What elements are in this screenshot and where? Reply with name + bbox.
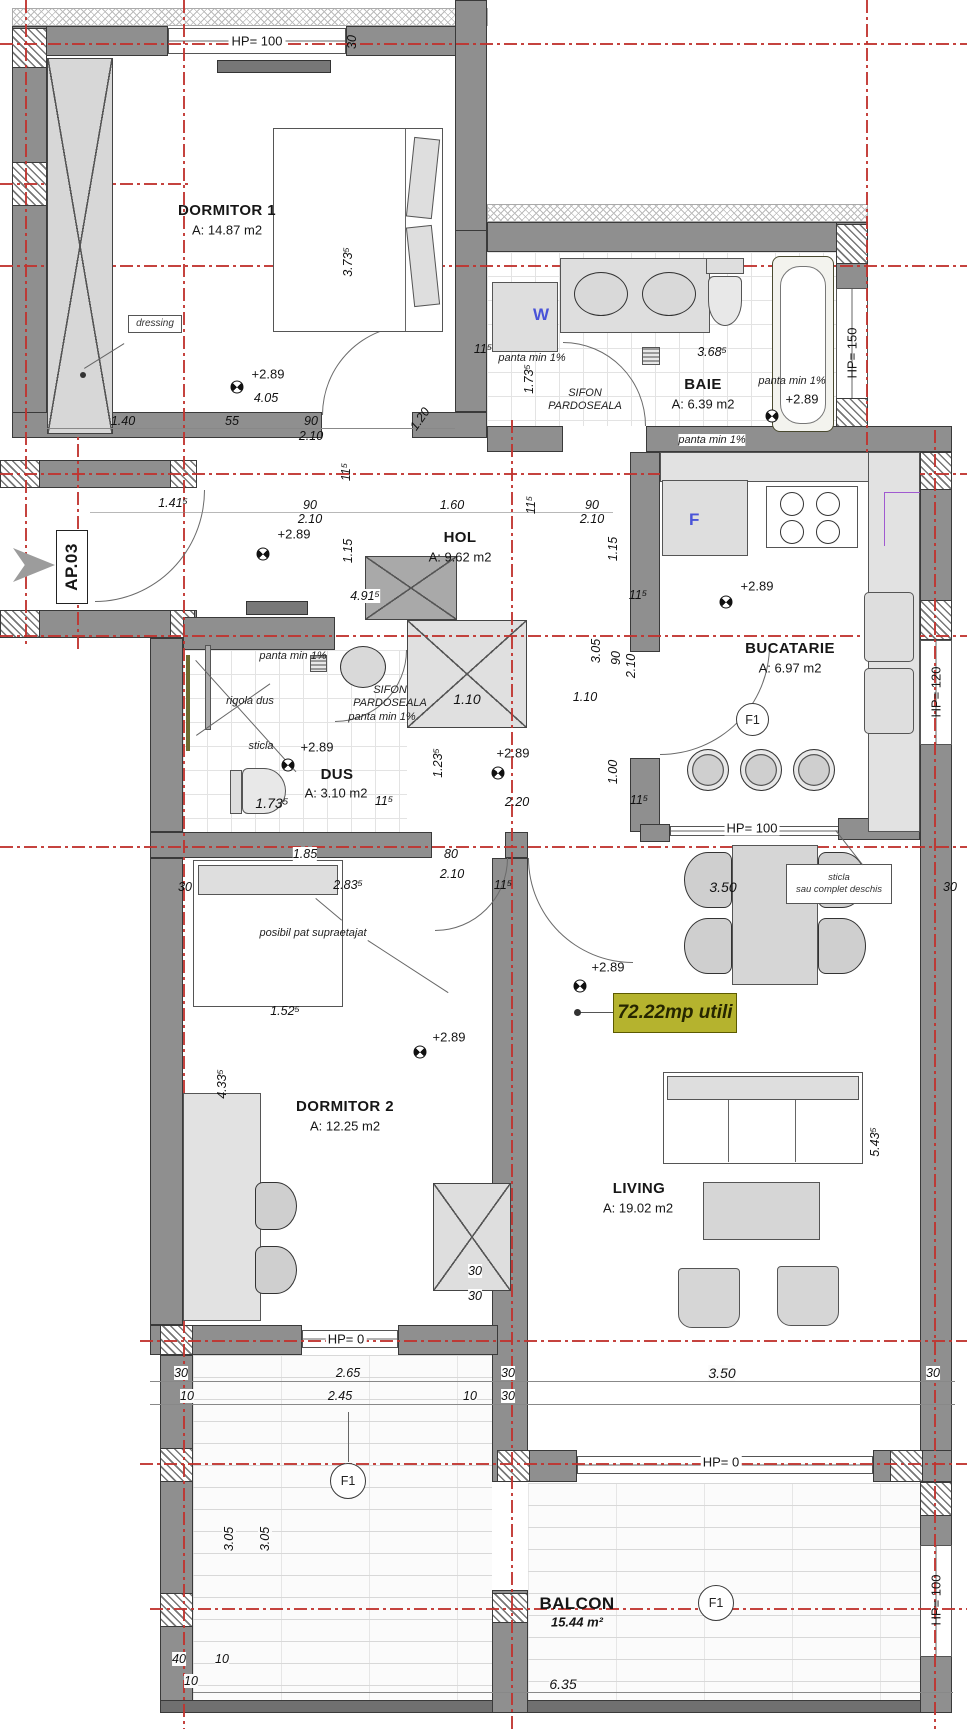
room-label-living: LIVING — [613, 1180, 665, 1198]
fridge-label: F — [689, 510, 699, 530]
floor-drain-baie — [642, 347, 660, 365]
level-text-living: +2.89 — [592, 960, 625, 975]
dim-label: 90 — [609, 651, 623, 665]
dim-chain-d1 — [47, 428, 455, 429]
dining-chair-2 — [684, 918, 732, 974]
sticla-partition — [186, 655, 190, 751]
dim-label: 1.15 — [606, 537, 620, 561]
door-dormitor1 — [322, 325, 412, 415]
room-label-dus: DUS — [321, 766, 354, 784]
column-living-bottom-right — [890, 1450, 923, 1482]
kitchen-sink-unit-bottom — [864, 668, 914, 734]
entrance-arrow-icon — [13, 548, 55, 582]
sifon-dus-line1: SIFON — [373, 684, 407, 696]
wall-dus-left — [150, 638, 183, 832]
dim-label: 1.73⁵ — [255, 795, 288, 811]
burner-3 — [780, 520, 804, 544]
insulation-strip-baie — [487, 204, 868, 222]
armchair-2 — [777, 1266, 839, 1326]
sofa-back — [667, 1076, 859, 1100]
dim-label: 1.60 — [440, 498, 464, 512]
toilet-baie-bowl — [708, 276, 742, 326]
purple-line-v — [884, 492, 885, 546]
level-marker-dus-right — [489, 764, 507, 782]
dressing-note: dressing — [128, 315, 182, 333]
axis-line-h1 — [0, 43, 967, 45]
dim-label: 30 — [178, 880, 192, 894]
dim-label: 90 — [304, 414, 318, 428]
sofa-seat-divider-2 — [795, 1100, 796, 1162]
room-label-hol: HOL — [444, 529, 477, 547]
dim-label: 3.73⁵ — [341, 247, 355, 277]
desk-chair-2 — [255, 1246, 297, 1294]
panta-note-dus-bottom: panta min 1% — [348, 711, 415, 723]
column-entrance-bot-left — [0, 610, 40, 638]
hp-living-door: HP= 0 — [701, 1455, 742, 1470]
axis-line-v5 — [866, 0, 868, 475]
dim-label: 55 — [225, 414, 239, 428]
dim-label: 30 — [468, 1264, 482, 1278]
dim-label: 11⁵ — [375, 794, 393, 808]
wall-baie-left — [455, 230, 487, 412]
level-text-hol: +2.89 — [278, 527, 311, 542]
f1-label: F1 — [341, 1474, 356, 1488]
axis-line-v1 — [25, 0, 27, 648]
dim-label: 10 — [180, 1389, 194, 1403]
apartment-label-box: AP.03 — [56, 530, 88, 604]
f1-marker-kitchen: F1 — [736, 703, 769, 736]
sifon-dus-line2: PARDOSEALA — [353, 697, 427, 709]
dim-chain-bottom-2 — [150, 1404, 955, 1405]
dim-label: 3.50 — [708, 1365, 735, 1381]
dim-label: 10 — [215, 1652, 229, 1666]
wall-kitchen-left-upper — [630, 452, 660, 652]
bar-stool-3 — [793, 749, 835, 791]
room-area-dus: A: 3.10 m2 — [305, 786, 368, 801]
desk-dormitor2 — [183, 1093, 261, 1321]
dim-label: 3.50 — [709, 879, 736, 895]
dim-label: 30 — [501, 1389, 515, 1403]
dim-label: 1.15 — [341, 539, 355, 563]
door-living — [528, 858, 633, 963]
room-area-balcon: 15.44 m² — [551, 1615, 603, 1630]
badge-leader-dot — [574, 1009, 581, 1016]
dim-label: 11⁵ — [630, 793, 648, 807]
posibil-leader — [367, 940, 448, 993]
dim-label: 6.35 — [549, 1676, 576, 1692]
burner-1 — [780, 492, 804, 516]
f1-marker-balcony-left: F1 — [330, 1463, 366, 1499]
room-label-baie: BAIE — [684, 376, 721, 394]
sink-right — [642, 272, 696, 316]
washing-machine-label: W — [533, 305, 549, 325]
apartment-label: AP.03 — [62, 543, 82, 591]
dim-label: 2.65 — [336, 1366, 360, 1380]
dim-chain-bottom-1 — [150, 1381, 955, 1382]
sticla-box-line2: sau complet deschis — [796, 884, 882, 896]
sifon-baie-line2: PARDOSEALA — [548, 400, 622, 412]
hol-console — [246, 601, 308, 615]
dim-label: 30 — [943, 880, 957, 894]
dim-label: 10 — [184, 1674, 198, 1688]
dim-label: 1.73⁵ — [522, 364, 536, 394]
level-marker-hol — [254, 545, 272, 563]
dim-label: 11⁵ — [524, 496, 538, 514]
room-area-baie: A: 6.39 m2 — [672, 397, 735, 412]
sticla-note: sticla — [248, 740, 273, 752]
room-label-dormitor1: DORMITOR 1 — [178, 202, 276, 220]
hp-dorm2-door: HP= 0 — [326, 1332, 367, 1347]
wall-baie-bottom-left — [487, 426, 563, 452]
useful-area-badge: 72.22mp utili — [613, 993, 737, 1033]
axis-line-v3 — [183, 0, 185, 1729]
axis-line-h5 — [0, 635, 967, 637]
purple-line-h — [884, 492, 920, 493]
dim-label: 4.33⁵ — [215, 1069, 229, 1099]
dus-round-sink — [340, 646, 386, 688]
dim-label: 11⁵ — [339, 463, 353, 481]
dim-label: 2.10 — [624, 654, 638, 678]
toilet-dus-tank — [230, 770, 242, 814]
dim-label: 1.40 — [111, 414, 135, 428]
dim-label: 90 — [303, 498, 317, 512]
sink-left — [574, 272, 628, 316]
dim-label: 11⁵ — [474, 342, 492, 356]
fridge — [662, 480, 748, 556]
level-text-dus-right: +2.89 — [497, 746, 530, 761]
rigola-note: rigola dus — [226, 695, 274, 707]
column-balcony-left-2 — [160, 1593, 193, 1627]
dim-label: 4.91⁵ — [350, 589, 380, 603]
insulation-strip-top — [12, 8, 488, 26]
column-balcony-right — [920, 1482, 952, 1516]
column-baie-right-top — [836, 224, 868, 264]
column-balcony-left-1 — [160, 1448, 193, 1482]
hp-kitchen-bar: HP= 100 — [725, 821, 780, 836]
level-text-baie: +2.89 — [786, 392, 819, 407]
room-label-balcon: BALCON — [539, 1594, 614, 1614]
dim-label: 11⁵ — [629, 588, 647, 602]
axis-line-h7 — [140, 1340, 967, 1342]
f1-marker-balcony-right: F1 — [698, 1585, 734, 1621]
level-text-kitchen: +2.89 — [741, 579, 774, 594]
dim-label: 1.00 — [606, 760, 620, 784]
dim-label: 3.68⁵ — [697, 345, 727, 359]
dim-label: 2.10 — [580, 512, 604, 526]
f1-leader-balcony-left — [348, 1412, 349, 1462]
f1-label: F1 — [745, 713, 760, 727]
wall-divider-d1-baie — [455, 0, 487, 232]
desk-chair-1 — [255, 1182, 297, 1230]
hp-kitchen-window: HP= 120 — [929, 667, 944, 718]
dim-chain-balcony — [193, 1692, 953, 1693]
room-label-dormitor2: DORMITOR 2 — [296, 1098, 394, 1116]
dim-label: 2.10 — [298, 512, 322, 526]
burner-2 — [816, 492, 840, 516]
door-bucatarie — [660, 645, 770, 755]
column-top-left — [12, 28, 47, 68]
level-text-dorm2: +2.89 — [433, 1030, 466, 1045]
level-marker-d1 — [228, 378, 246, 396]
level-marker-living — [571, 977, 589, 995]
column-kitchen-right-top — [920, 452, 952, 490]
dim-label: 90 — [585, 498, 599, 512]
f1-label: F1 — [709, 1596, 724, 1610]
hp-baie-right: HP= 150 — [845, 328, 860, 379]
axis-line-h8 — [140, 1463, 967, 1465]
sticla-complet-box: sticla sau complet deschis — [786, 864, 892, 904]
dim-label: 5.43⁵ — [868, 1127, 882, 1157]
room-area-living: A: 19.02 m2 — [603, 1201, 673, 1216]
panta-note-baie-right: panta min 1% — [758, 375, 825, 387]
dressing-text: dressing — [136, 318, 174, 331]
column-kitchen-right-mid — [920, 600, 952, 640]
stove — [766, 486, 858, 548]
rigola-strip — [205, 645, 211, 730]
dressing-wardrobe — [47, 58, 113, 434]
dim-label: 1.52⁵ — [270, 1004, 300, 1018]
dining-chair-4 — [818, 918, 866, 974]
panta-note-baie-bottom: panta min 1% — [678, 434, 745, 446]
balcony-parapet — [160, 1700, 952, 1713]
room-area-hol: A: 9.62 m2 — [429, 550, 492, 565]
dim-label: 10 — [463, 1389, 477, 1403]
posibil-note: posibil pat supraetajat — [259, 927, 366, 939]
dim-label: 11⁵ — [494, 878, 512, 892]
room-area-dormitor2: A: 12.25 m2 — [310, 1119, 380, 1134]
dim-label: 3.05 — [222, 1527, 236, 1551]
hp-top-window: HP= 100 — [229, 34, 286, 49]
wall-dorm2-top-left — [150, 832, 432, 858]
toilet-baie-tank — [706, 258, 744, 274]
dim-label: 3.05 — [258, 1527, 272, 1551]
room-label-bucatarie: BUCATARIE — [745, 640, 835, 658]
useful-area-text: 72.22mp utili — [617, 1002, 732, 1024]
hp-balcony-right: HP= 100 — [929, 1575, 944, 1626]
balcony-tile-floor-left — [193, 1355, 492, 1700]
door-entrance — [95, 490, 205, 602]
floor-plan: AP.03 F1 F1 F1 DORMITOR 1 A: 14.87 m2 BA… — [0, 0, 967, 1729]
dim-label: 2.20 — [505, 795, 529, 809]
room-area-bucatarie: A: 6.97 m2 — [759, 661, 822, 676]
badge-leader — [580, 1012, 613, 1013]
dim-label: 30 — [501, 1366, 515, 1380]
bar-wall-left — [640, 824, 670, 842]
panta-note-baie-left: panta min 1% — [498, 352, 565, 364]
dim-label: 3.05 — [589, 639, 603, 663]
panta-note-dus-top: panta min 1% — [259, 650, 326, 662]
dim-label: 2.10 — [440, 867, 464, 881]
dim-label: 30 — [345, 35, 359, 49]
bar-stool-2 — [740, 749, 782, 791]
dim-label: 1.10 — [573, 690, 597, 704]
axis-line-v4 — [511, 420, 513, 1729]
dim-label: 2.45 — [328, 1389, 352, 1403]
burner-4 — [816, 520, 840, 544]
level-marker-dorm2 — [411, 1043, 429, 1061]
dim-label: 4.05 — [254, 391, 278, 405]
kitchen-sink-unit-top — [864, 592, 914, 662]
dim-label: 1.23⁵ — [431, 748, 445, 778]
coffee-table — [703, 1182, 820, 1240]
level-text-dus: +2.89 — [301, 740, 334, 755]
dim-label: 1.85 — [293, 847, 317, 861]
level-text-d1: +2.89 — [252, 367, 285, 382]
wall-left-outer — [12, 26, 47, 438]
tv-console-dormitor1 — [217, 60, 331, 73]
wall-dorm2-left — [150, 858, 183, 1325]
dressing-leader-dot — [80, 372, 86, 378]
sticla-box-line1: sticla — [828, 872, 850, 884]
bar-stool-1 — [687, 749, 729, 791]
level-marker-kitchen — [717, 593, 735, 611]
dim-label: 40 — [172, 1652, 186, 1666]
room-area-dormitor1: A: 14.87 m2 — [192, 223, 262, 238]
dim-label: 1.41⁵ — [158, 496, 188, 510]
dim-label: 30 — [174, 1366, 188, 1380]
sofa-seat-divider-1 — [728, 1100, 729, 1162]
dim-label: 30 — [468, 1289, 482, 1303]
dim-label: 2.10 — [299, 429, 323, 443]
column-living-bottom-left — [497, 1450, 530, 1482]
armchair-1 — [678, 1268, 740, 1328]
dim-label: 80 — [444, 847, 458, 861]
wall-dorm2-top-right — [505, 832, 528, 858]
bed2-pillow — [198, 865, 338, 895]
axis-line-h6 — [0, 846, 967, 848]
sifon-baie-line1: SIFON — [568, 387, 602, 399]
dim-label: 2.83⁵ — [333, 878, 363, 892]
dim-label: 1.10 — [453, 691, 480, 707]
axis-line-v6 — [934, 430, 936, 1729]
shaft-hol — [365, 556, 457, 620]
dim-label: 30 — [926, 1366, 940, 1380]
wall-baie-top — [487, 222, 868, 252]
